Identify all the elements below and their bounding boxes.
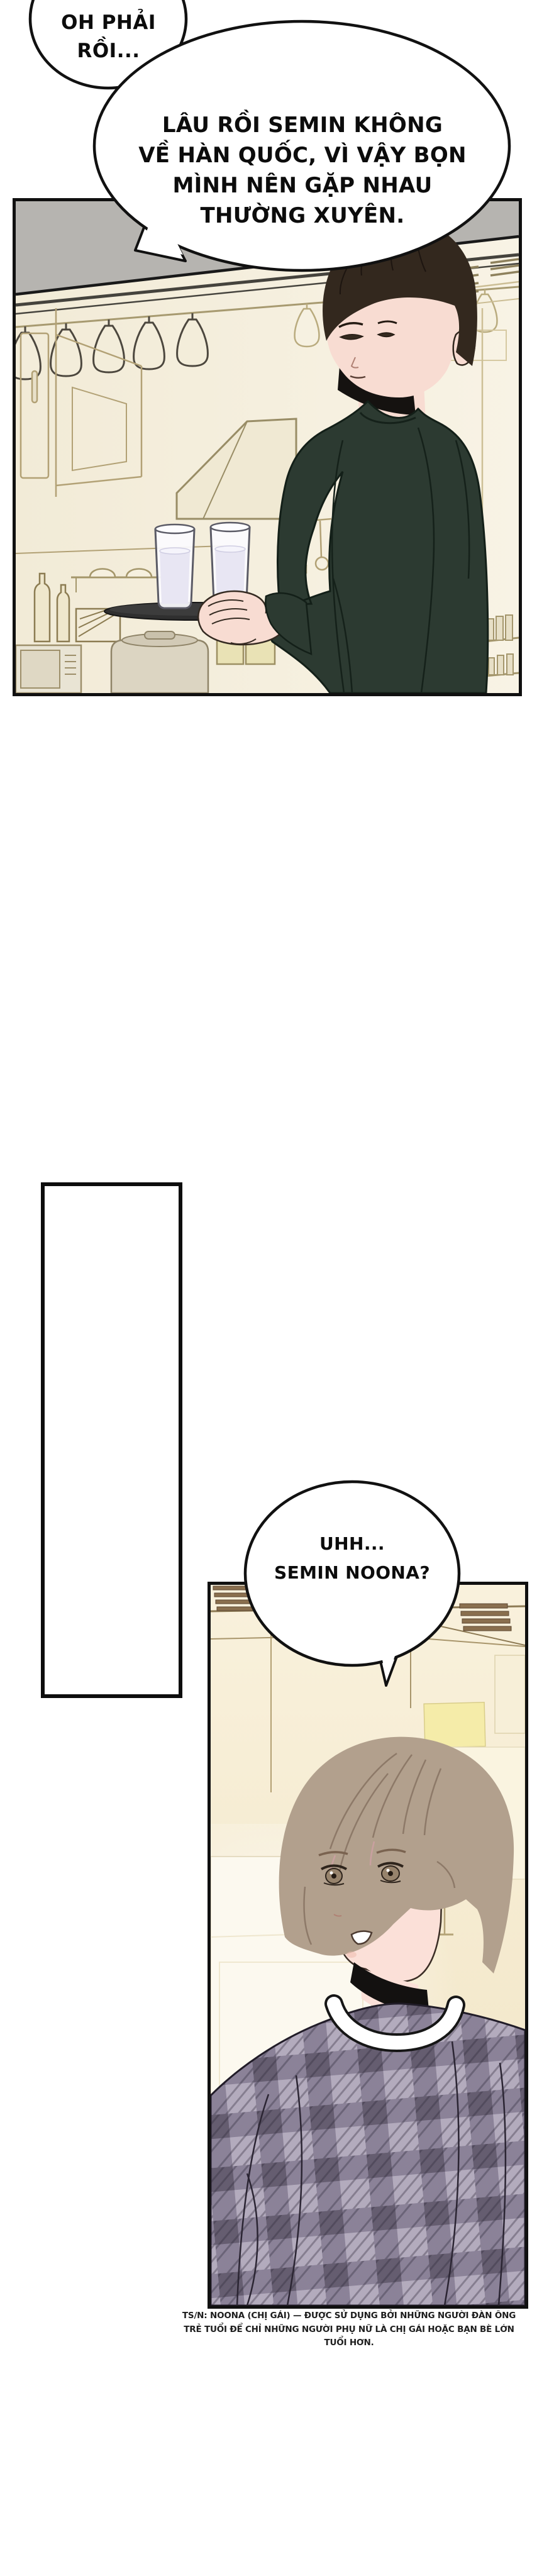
bubble2-line2: VỀ HÀN QUỐC, VÌ VẬY BỌN bbox=[114, 140, 491, 170]
microwave bbox=[16, 645, 81, 693]
speech-bubble-2-text: LÂU RỒI SEMIN KHÔNG VỀ HÀN QUỐC, VÌ VẬY … bbox=[114, 110, 491, 231]
bubble3-line2: SEMIN NOONA? bbox=[258, 1558, 446, 1587]
bubble2-line4: THƯỜNG XUYÊN. bbox=[114, 201, 491, 231]
speech-bubble-3-text: UHH... SEMIN NOONA? bbox=[258, 1529, 446, 1587]
bubble3-line1: UHH... bbox=[258, 1529, 446, 1558]
empty-white-panel bbox=[41, 1182, 182, 1698]
pressure-cooker bbox=[111, 631, 208, 693]
comic-page: OH PHẢI RỒI... LÂU RỒI SEMIN KHÔNG VỀ HÀ… bbox=[0, 0, 554, 2576]
translator-note-line3: TUỔI HƠN. bbox=[160, 2336, 538, 2350]
translator-note-line1: TS/N: NOONA (CHỊ GÁI) — ĐƯỢC SỬ DỤNG BỞI… bbox=[160, 2309, 538, 2323]
translator-note: TS/N: NOONA (CHỊ GÁI) — ĐƯỢC SỬ DỤNG BỞI… bbox=[160, 2309, 538, 2350]
translator-note-line2: TRẺ TUỔI ĐỂ CHỈ NHỮNG NGƯỜI PHỤ NỮ LÀ CH… bbox=[160, 2323, 538, 2337]
water-glass-left bbox=[155, 525, 194, 608]
bubble2-line1: LÂU RỒI SEMIN KHÔNG bbox=[114, 110, 491, 140]
bubble2-line3: MÌNH NÊN GẶP NHAU bbox=[114, 170, 491, 201]
speech-bubble-2: LÂU RỒI SEMIN KHÔNG VỀ HÀN QUỐC, VÌ VẬY … bbox=[91, 16, 514, 280]
speech-bubble-3: UHH... SEMIN NOONA? bbox=[238, 1477, 470, 1694]
